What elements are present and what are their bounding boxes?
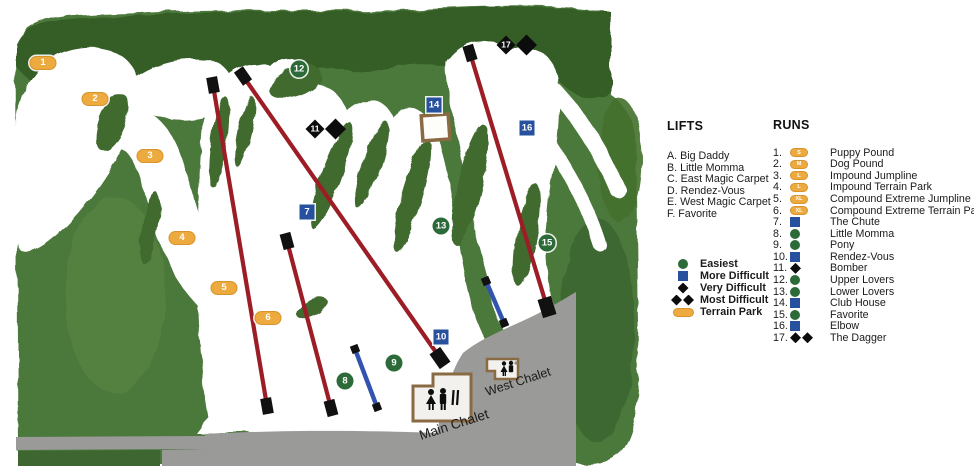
run-name: Bomber	[830, 262, 867, 274]
run-symbol-cell	[790, 298, 830, 308]
run-difficulty-icon	[790, 263, 801, 274]
run-number: 5.	[773, 193, 790, 205]
run-name: Favorite	[830, 309, 869, 321]
lift-item: F. Favorite	[667, 209, 771, 221]
run-symbol-cell: L	[790, 183, 830, 192]
run-marker-number: 2	[92, 94, 97, 104]
ski-trail-map-page: Main Chalet West Chalet 1 2 3 4 5	[0, 0, 974, 466]
run-symbol-cell	[790, 240, 830, 250]
run-marker-number: 7	[304, 207, 309, 217]
run-symbol-cell	[790, 275, 830, 285]
run-difficulty-icon: L	[790, 171, 808, 180]
run-row: 10. Rendez-Vous	[773, 251, 974, 263]
run-difficulty-icon	[790, 275, 800, 285]
run-number: 15.	[773, 309, 790, 321]
run-number: 7.	[773, 216, 790, 228]
run-symbol-cell	[790, 287, 830, 297]
run-row: 14. Club House	[773, 297, 974, 309]
run-number: 1.	[773, 147, 790, 159]
run-name: Compound Extreme Terrain Park	[830, 205, 974, 217]
run-name: The Dagger	[830, 332, 886, 344]
difficulty-label: Very Difficult	[700, 282, 766, 294]
lifts-title: LIFTS	[667, 119, 771, 133]
run-symbol-cell	[790, 310, 830, 320]
run-marker-number: 10	[436, 332, 447, 342]
run-marker-number: 17	[501, 41, 510, 50]
run-row: 2. M Dog Pound	[773, 159, 974, 171]
difficulty-symbol-cell	[666, 271, 700, 281]
run-difficulty-icon: L	[790, 183, 808, 192]
run-symbol-cell	[790, 321, 830, 331]
run-number: 17.	[773, 332, 790, 344]
run-row: 9. Pony	[773, 240, 974, 252]
run-difficulty-icon	[790, 252, 800, 262]
run-number: 12.	[773, 274, 790, 286]
run-difficulty-icon: XL	[790, 206, 808, 215]
run-marker-number: 12	[294, 64, 305, 74]
run-difficulty-icon	[790, 217, 800, 227]
run-row: 15. Favorite	[773, 309, 974, 321]
lifts-list: A. Big Daddy B. Little Momma C. East Mag…	[667, 151, 771, 221]
lift-item: A. Big Daddy	[667, 151, 771, 163]
run-number: 8.	[773, 228, 790, 240]
difficulty-row: Terrain Park	[666, 306, 769, 318]
run-name: Lower Lovers	[830, 286, 894, 298]
run-name: Little Momma	[830, 228, 894, 240]
run-number: 9.	[773, 239, 790, 251]
difficulty-label: Most Difficult	[700, 294, 768, 306]
run-markers-layer: 1 2 3 4 5 6 7	[0, 0, 660, 466]
run-row: 17. The Dagger	[773, 332, 974, 344]
run-symbol-cell: XL	[790, 206, 830, 215]
lifts-legend: LIFTS A. Big Daddy B. Little Momma C. Ea…	[667, 119, 771, 221]
run-row: 8. Little Momma	[773, 228, 974, 240]
run-row: 3. L Impound Jumpline	[773, 170, 974, 182]
run-row: 11. Bomber	[773, 263, 974, 275]
run-marker-number: 3	[147, 151, 152, 161]
run-difficulty-icon	[790, 298, 800, 308]
run-name: Impound Jumpline	[830, 170, 917, 182]
run-marker-number: 11	[311, 125, 320, 134]
difficulty-symbol-icon	[678, 283, 689, 294]
run-number: 13.	[773, 286, 790, 298]
run-name: Elbow	[830, 320, 859, 332]
runs-legend: RUNS 1. S Puppy Pound 2. M Dog Pound	[773, 118, 974, 344]
run-marker-number: 6	[265, 313, 270, 323]
run-row: 6. XL Compound Extreme Terrain Park	[773, 205, 974, 217]
run-name: Puppy Pound	[830, 147, 894, 159]
difficulty-symbol-icon	[673, 308, 694, 317]
run-row: 5. XL Compound Extreme Jumpline	[773, 193, 974, 205]
run-difficulty-icon	[790, 240, 800, 250]
run-marker-number: 8	[342, 376, 347, 386]
run-difficulty-icon: XL	[790, 195, 808, 204]
run-difficulty-icon	[790, 287, 800, 297]
run-row: 13. Lower Lovers	[773, 286, 974, 298]
run-marker-number: 9	[391, 358, 396, 368]
run-marker-number: 1	[40, 58, 45, 68]
run-name: Compound Extreme Jumpline	[830, 193, 971, 205]
difficulty-row: Very Difficult	[666, 282, 769, 294]
run-marker-number: 13	[436, 221, 447, 231]
difficulty-symbol-icon	[671, 295, 695, 306]
run-name: Pony	[830, 239, 854, 251]
difficulty-row: Most Difficult	[666, 294, 769, 306]
run-number: 3.	[773, 170, 790, 182]
run-name: Club House	[830, 297, 886, 309]
run-row: 12. Upper Lovers	[773, 274, 974, 286]
run-difficulty-icon	[790, 321, 800, 331]
run-name: Upper Lovers	[830, 274, 894, 286]
run-name: The Chute	[830, 216, 880, 228]
run-number: 4.	[773, 181, 790, 193]
run-number: 6.	[773, 205, 790, 217]
run-symbol-cell: XL	[790, 195, 830, 204]
run-symbol-cell	[790, 217, 830, 227]
runs-list: 1. S Puppy Pound 2. M Dog Pound 3.	[773, 147, 974, 344]
run-symbol-cell	[790, 229, 830, 239]
difficulty-row: Easiest	[666, 258, 769, 270]
difficulty-key: Easiest More Difficult Very Difficult	[666, 258, 769, 318]
run-marker-number: 14	[429, 100, 440, 110]
difficulty-label: Easiest	[700, 258, 738, 270]
difficulty-symbol-cell	[666, 259, 700, 269]
run-marker-number: 4	[179, 233, 184, 243]
run-symbol-cell: M	[790, 160, 830, 169]
difficulty-symbol-cell	[666, 283, 700, 294]
runs-title: RUNS	[773, 118, 974, 132]
run-number: 14.	[773, 297, 790, 309]
run-row: 16. Elbow	[773, 320, 974, 332]
difficulty-symbol-icon	[678, 259, 688, 269]
run-name: Impound Terrain Park	[830, 181, 932, 193]
run-name: Rendez-Vous	[830, 251, 894, 263]
run-difficulty-icon	[790, 229, 800, 239]
difficulty-symbol-cell	[666, 295, 700, 306]
difficulty-label: Terrain Park	[700, 306, 762, 318]
run-row: 7. The Chute	[773, 216, 974, 228]
run-symbol-cell: S	[790, 148, 830, 157]
run-row: 4. L Impound Terrain Park	[773, 182, 974, 194]
difficulty-symbol-icon	[678, 271, 688, 281]
difficulty-row: More Difficult	[666, 270, 769, 282]
run-difficulty-icon: S	[790, 148, 808, 157]
run-marker-number: 16	[522, 123, 533, 133]
run-number: 11.	[773, 262, 790, 274]
run-difficulty-icon	[790, 310, 800, 320]
run-difficulty-icon	[790, 332, 814, 343]
run-row: 1. S Puppy Pound	[773, 147, 974, 159]
run-number: 2.	[773, 158, 790, 170]
run-symbol-cell: L	[790, 171, 830, 180]
run-symbol-cell	[790, 263, 830, 274]
run-marker-number: 5	[221, 283, 226, 293]
run-name: Dog Pound	[830, 158, 883, 170]
run-symbol-cell	[790, 332, 830, 343]
run-difficulty-icon: M	[790, 160, 808, 169]
difficulty-symbol-cell	[666, 308, 700, 317]
difficulty-label: More Difficult	[700, 270, 769, 282]
run-number: 16.	[773, 320, 790, 332]
run-marker-number: 15	[542, 238, 553, 248]
run-number: 10.	[773, 251, 790, 263]
run-symbol-cell	[790, 252, 830, 262]
